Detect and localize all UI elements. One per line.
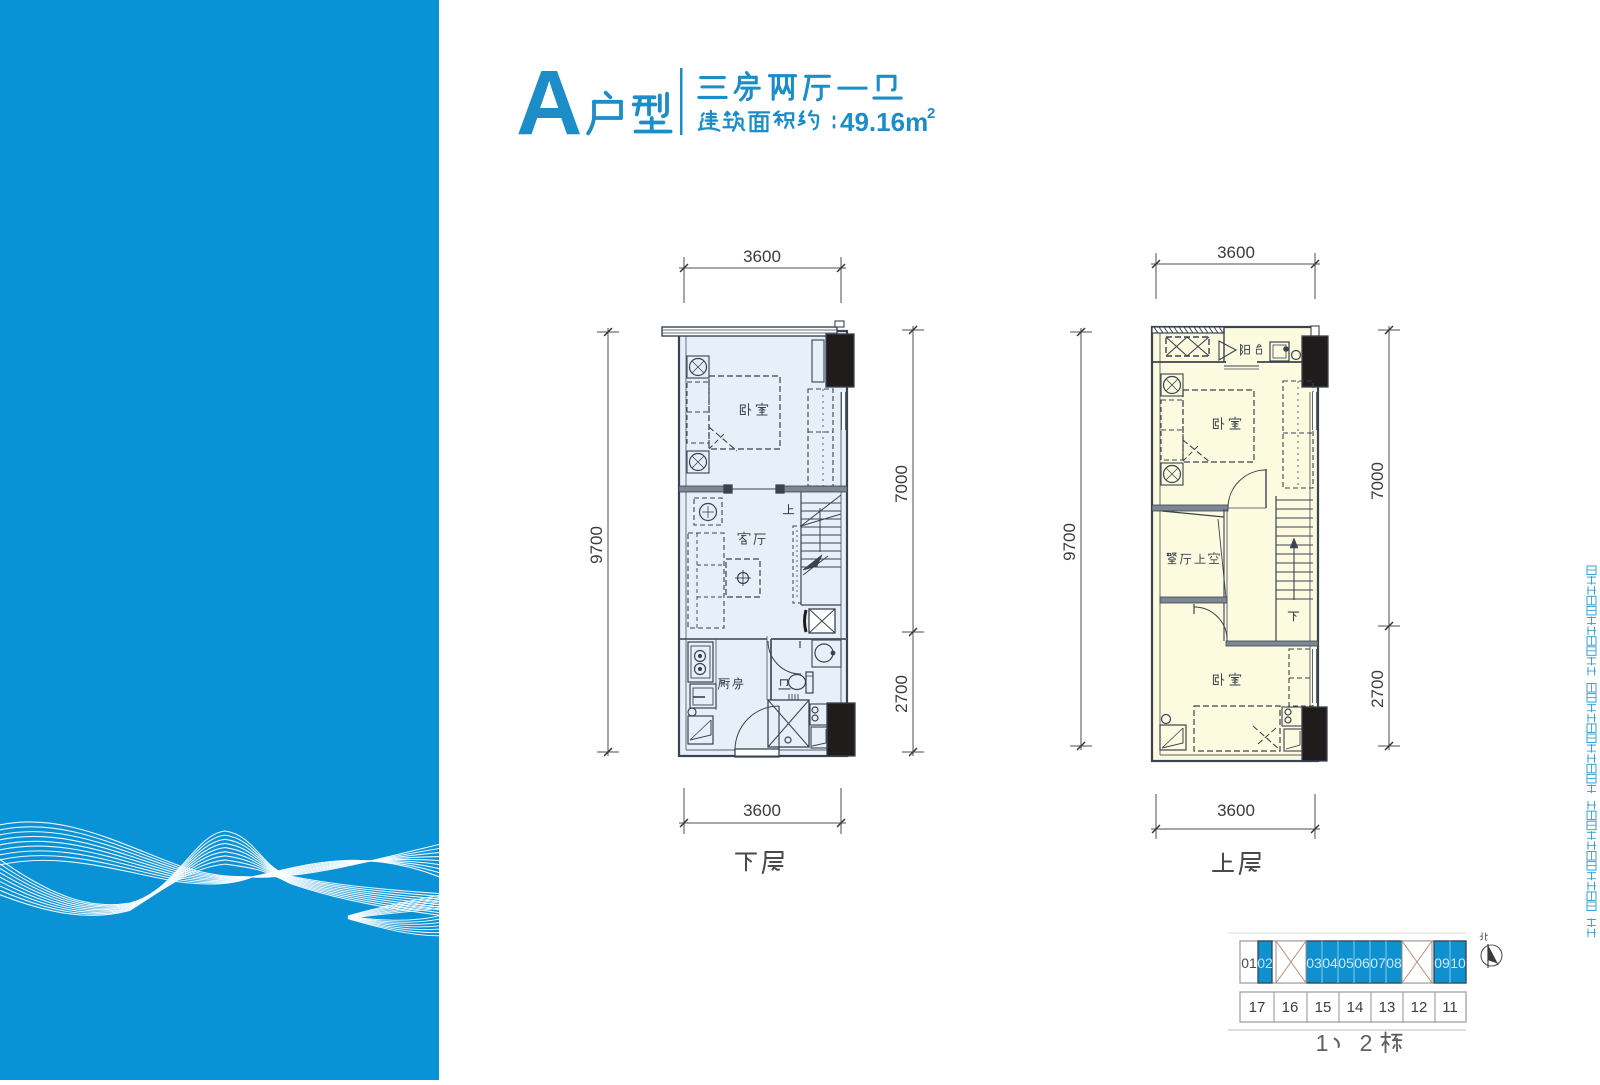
svg-text:49.16m: 49.16m xyxy=(840,107,928,137)
svg-text:7000: 7000 xyxy=(1368,462,1387,500)
svg-text:3600: 3600 xyxy=(1217,801,1255,820)
svg-text:07: 07 xyxy=(1370,955,1386,971)
svg-text:9700: 9700 xyxy=(587,526,606,564)
svg-text:03: 03 xyxy=(1306,955,1322,971)
svg-text:11: 11 xyxy=(1442,999,1458,1016)
svg-text:17: 17 xyxy=(1249,999,1266,1016)
svg-text:16: 16 xyxy=(1282,999,1299,1016)
svg-text:13: 13 xyxy=(1379,999,1396,1016)
svg-text:9700: 9700 xyxy=(1060,523,1079,561)
svg-text:A: A xyxy=(516,52,582,154)
svg-text:08: 08 xyxy=(1386,955,1402,971)
svg-text:3600: 3600 xyxy=(743,247,781,266)
svg-text:10: 10 xyxy=(1450,955,1466,971)
svg-text:3600: 3600 xyxy=(1217,243,1255,262)
svg-text:2: 2 xyxy=(927,105,935,122)
svg-text:09: 09 xyxy=(1434,955,1450,971)
svg-text:06: 06 xyxy=(1354,955,1370,971)
svg-text:7000: 7000 xyxy=(892,465,911,503)
svg-text:15: 15 xyxy=(1315,999,1332,1016)
svg-text:12: 12 xyxy=(1411,999,1428,1016)
svg-text:1: 1 xyxy=(1316,1030,1329,1056)
svg-text:02: 02 xyxy=(1257,955,1273,971)
svg-text:2700: 2700 xyxy=(1368,670,1387,708)
svg-text:2: 2 xyxy=(1360,1030,1373,1056)
svg-text:01: 01 xyxy=(1241,955,1257,971)
svg-text:2700: 2700 xyxy=(892,675,911,713)
svg-text:05: 05 xyxy=(1338,955,1354,971)
svg-text:14: 14 xyxy=(1347,999,1364,1016)
svg-text:3600: 3600 xyxy=(743,801,781,820)
svg-text:04: 04 xyxy=(1322,955,1338,971)
